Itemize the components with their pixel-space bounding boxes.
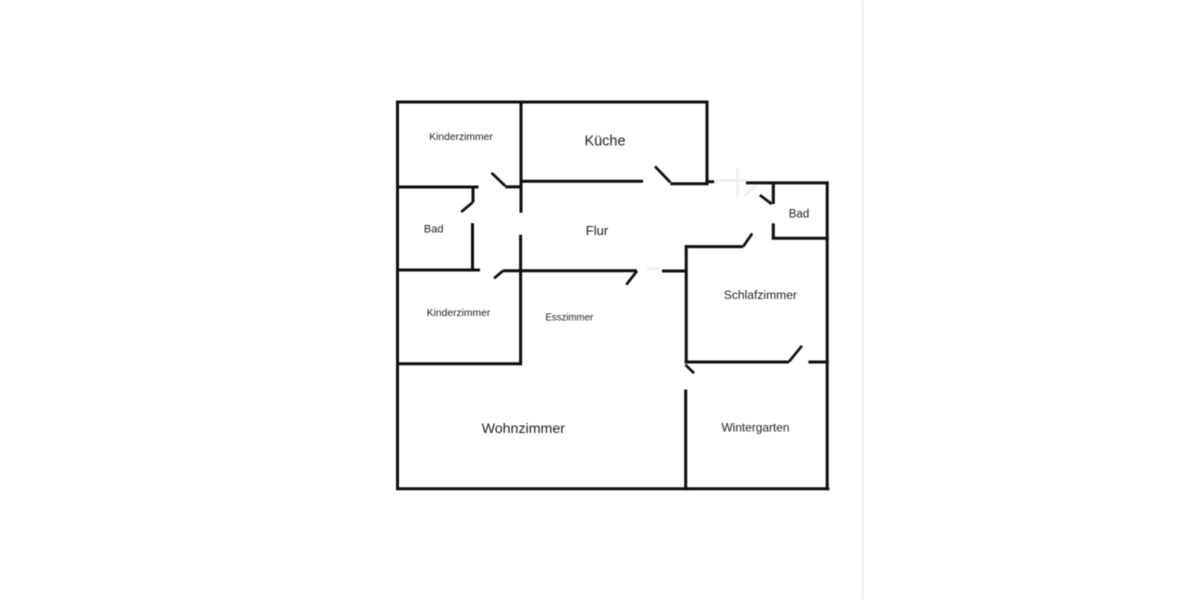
svg-text:Schlafzimmer: Schlafzimmer [724, 288, 797, 302]
svg-text:Wohnzimmer: Wohnzimmer [482, 421, 566, 437]
svg-text:Bad: Bad [789, 208, 809, 220]
svg-text:Flur: Flur [586, 223, 609, 238]
svg-text:Esszimmer: Esszimmer [545, 313, 594, 324]
svg-text:Wintergarten: Wintergarten [721, 421, 789, 435]
svg-text:Kinderzimmer: Kinderzimmer [429, 132, 493, 143]
svg-text:Bad: Bad [424, 224, 444, 236]
svg-text:Kinderzimmer: Kinderzimmer [427, 308, 491, 319]
svg-text:Küche: Küche [584, 134, 625, 150]
